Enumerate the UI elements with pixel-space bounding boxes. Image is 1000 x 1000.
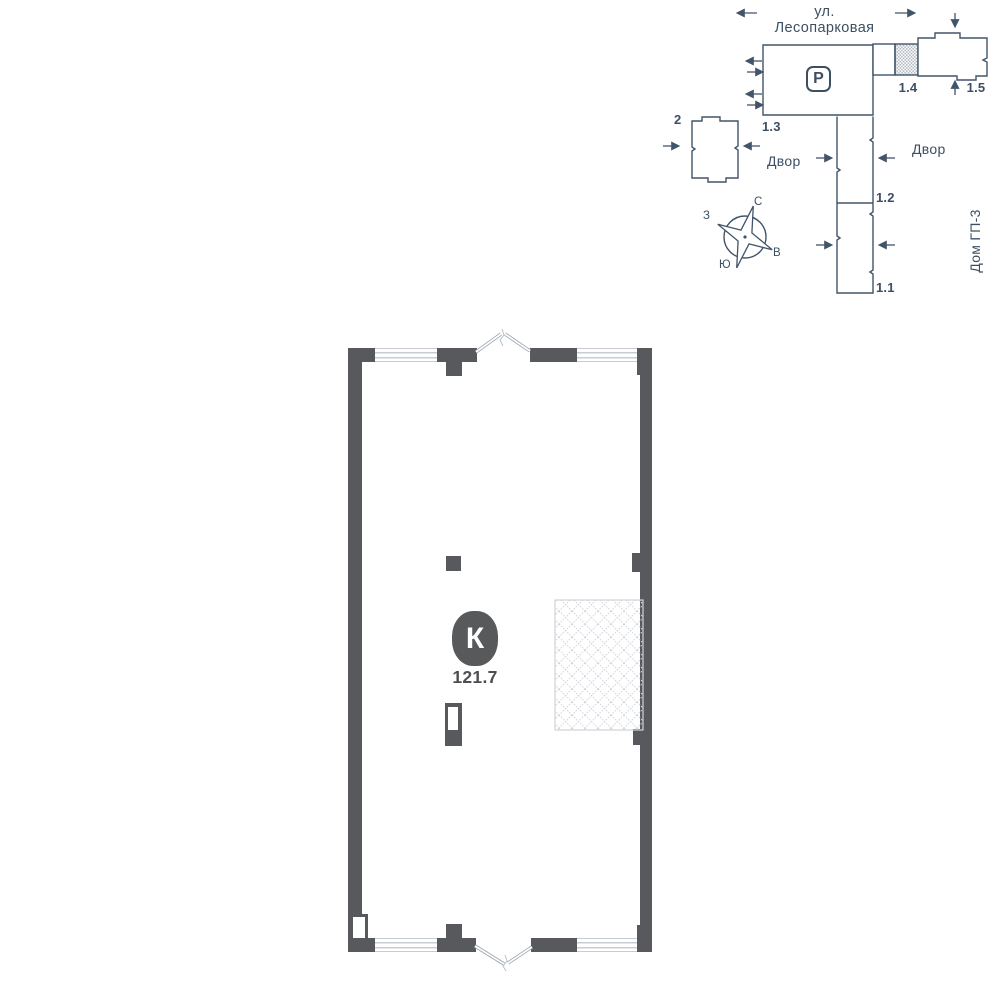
entrance-door-bottom: [475, 946, 532, 971]
hatched-zone: [555, 600, 643, 730]
entrance-door-top: [476, 329, 530, 352]
floorplan-page: ул. Лесопарковая Р 1.3 1.4 1.5 1.2 1.1 2…: [0, 0, 1000, 1000]
unit-area-label: 121.7: [437, 667, 513, 688]
unit-type-badge[interactable]: К: [452, 611, 498, 666]
plan-overlay-drawing: [0, 0, 1000, 1000]
door-break-line: [500, 329, 504, 346]
